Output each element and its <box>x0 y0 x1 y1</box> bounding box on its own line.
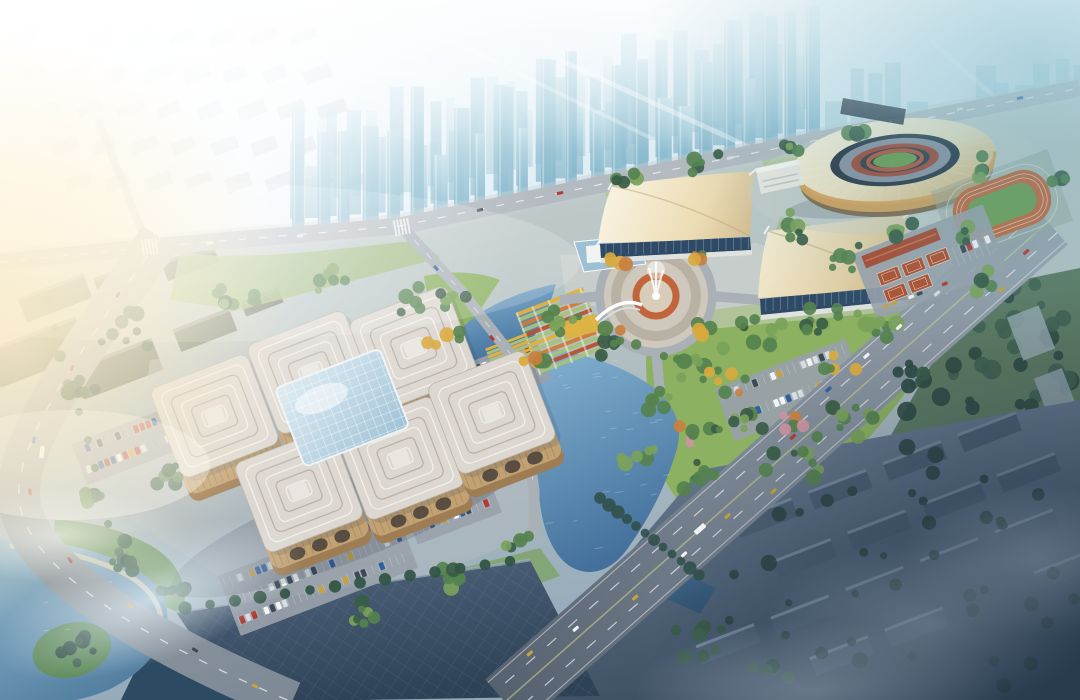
tree <box>605 258 615 268</box>
tree <box>619 257 633 271</box>
tree <box>628 167 640 179</box>
tree <box>549 320 560 331</box>
tree <box>429 566 440 577</box>
tree <box>714 377 723 386</box>
aerial-rendering-stage: Aerial architectural rendering at dusk o… <box>0 0 1080 700</box>
tree <box>676 353 692 369</box>
tree <box>660 352 668 360</box>
tree <box>746 334 762 350</box>
tree <box>668 550 677 559</box>
tree <box>519 356 529 366</box>
tree <box>698 465 710 477</box>
tree <box>801 324 812 335</box>
tree <box>763 338 778 353</box>
tree <box>505 556 516 567</box>
tree <box>615 325 626 336</box>
tree <box>657 401 670 414</box>
tree <box>649 445 657 453</box>
tree <box>676 373 686 383</box>
tree <box>612 175 622 185</box>
tree <box>631 339 641 349</box>
tree <box>631 521 641 531</box>
tree <box>404 570 416 582</box>
tree <box>480 559 491 570</box>
tree <box>699 376 706 383</box>
tree <box>305 585 314 594</box>
fountain-mist <box>647 261 665 279</box>
tree <box>528 351 542 365</box>
tree <box>523 531 534 542</box>
tree <box>659 543 668 552</box>
tree <box>379 573 391 585</box>
tree <box>725 367 738 380</box>
tree <box>693 459 700 466</box>
tree <box>622 514 632 524</box>
tree <box>598 321 614 337</box>
tree <box>829 351 839 361</box>
tree <box>740 425 747 432</box>
tree <box>641 529 650 538</box>
tree <box>673 420 685 432</box>
tree <box>694 327 709 342</box>
tree <box>595 349 608 362</box>
tree <box>704 367 715 378</box>
tree <box>694 358 703 367</box>
tree <box>354 577 366 589</box>
tree <box>686 439 694 447</box>
tree <box>718 386 732 400</box>
aerial-rendering: Aerial architectural rendering at dusk o… <box>0 0 1080 700</box>
tree <box>631 451 643 463</box>
tree <box>515 536 523 544</box>
hall-west-canopy <box>586 245 601 263</box>
tree <box>728 416 739 427</box>
tree <box>677 481 692 496</box>
tree <box>714 366 722 374</box>
tree <box>359 619 368 628</box>
tree <box>501 540 512 551</box>
tree <box>616 336 625 345</box>
tree <box>685 424 699 438</box>
tree <box>616 453 626 463</box>
tree <box>645 393 658 406</box>
tree <box>716 426 723 433</box>
tree <box>735 389 743 397</box>
tree <box>814 328 822 336</box>
tree <box>740 374 749 383</box>
tree <box>329 580 341 592</box>
tree <box>358 605 365 612</box>
tree <box>455 563 466 574</box>
tree <box>688 253 701 266</box>
tree <box>368 611 380 623</box>
tree <box>735 316 748 329</box>
tree <box>765 323 777 335</box>
tree <box>717 342 730 355</box>
tree <box>740 414 749 423</box>
tree <box>648 534 660 546</box>
tree <box>749 314 760 325</box>
tree <box>665 393 673 401</box>
tree <box>568 315 577 324</box>
